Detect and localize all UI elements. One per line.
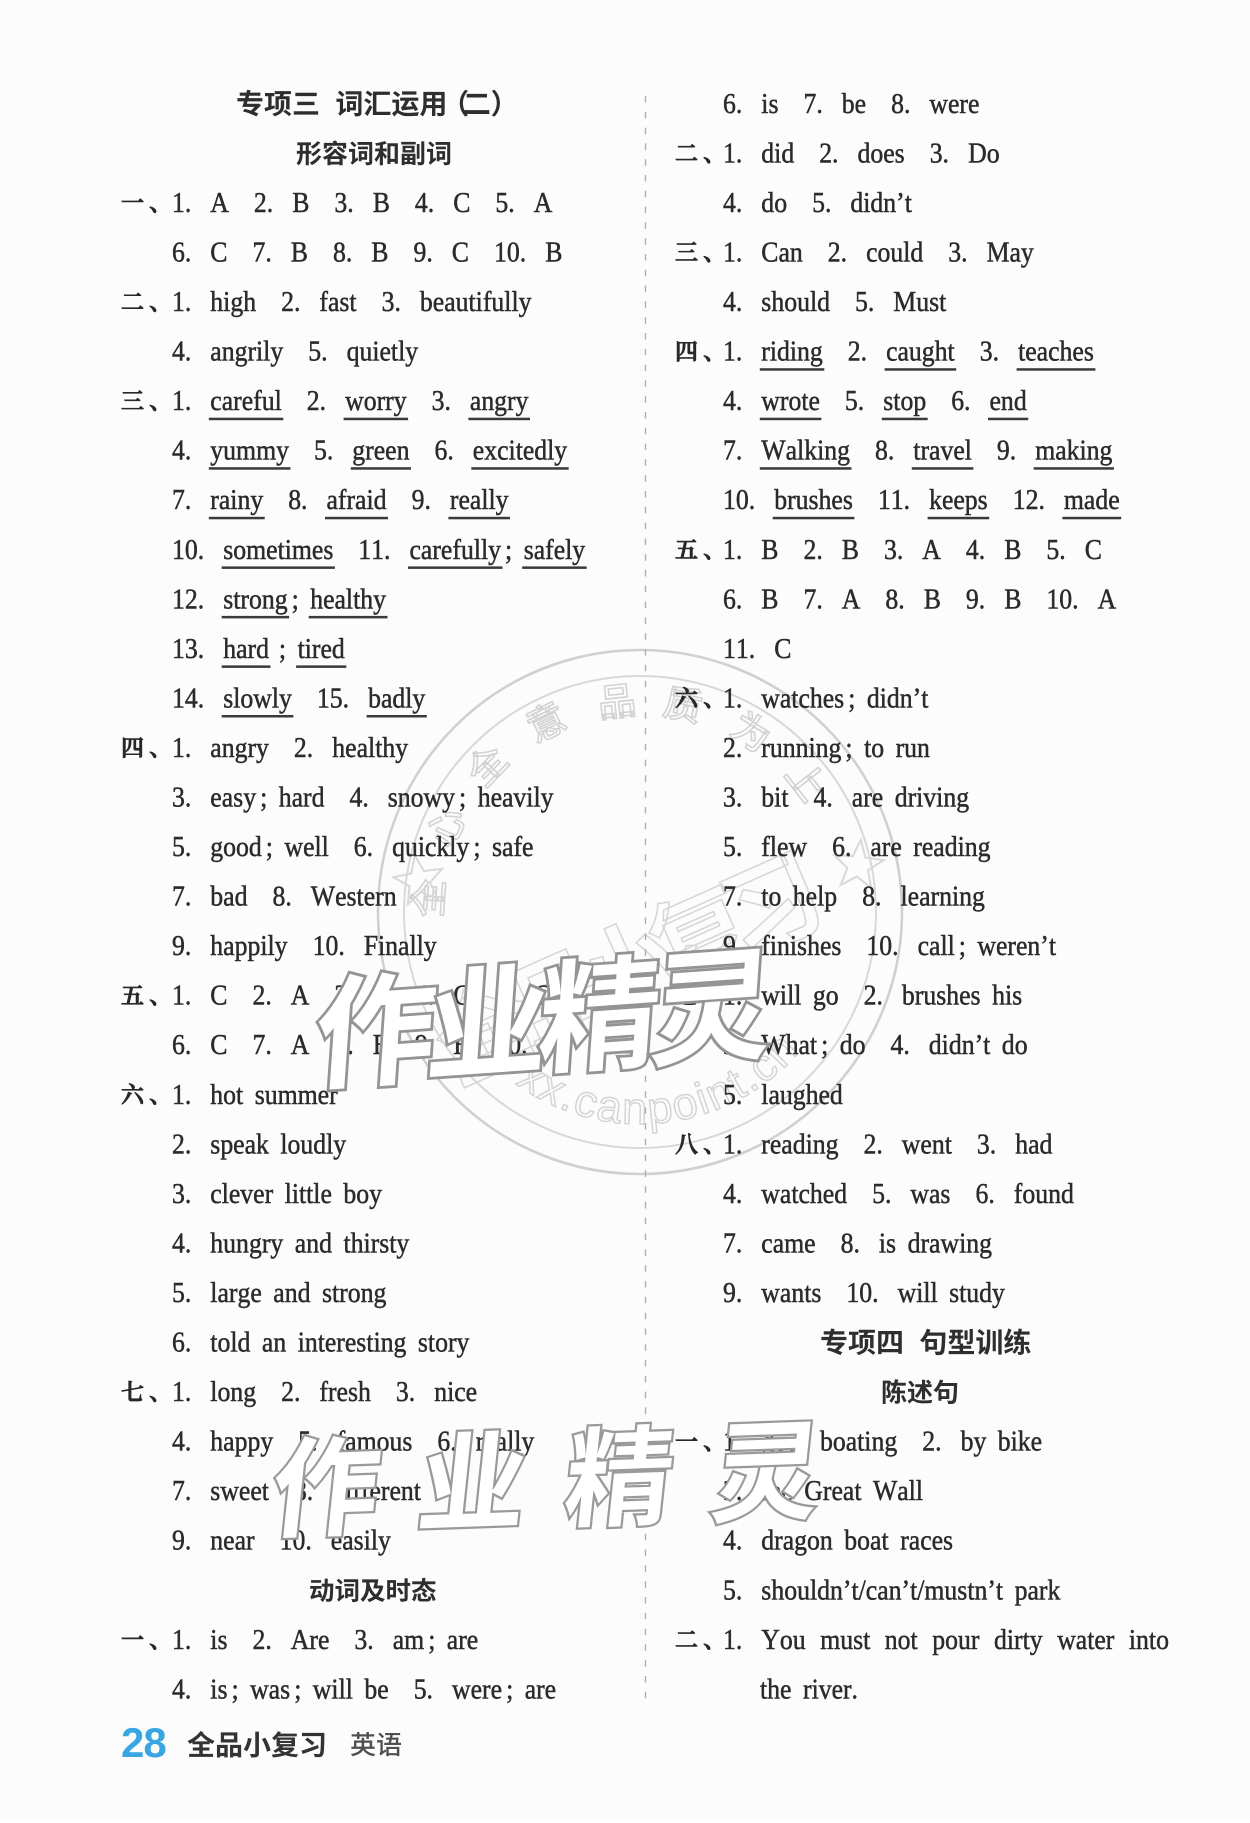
svg-text:1.willgo2.brusheshis: 1.willgo2.brusheshis [723,980,1022,1012]
svg-text:5.laughed: 5.laughed [723,1079,843,1111]
svg-text:6.is7.be8.were: 6.is7.be8.were [723,88,979,120]
svg-text:1.is2.Are3.am;are: 1.is2.Are3.am;are [172,1624,478,1656]
svg-text:9.finishes10.call;weren’t: 9.finishes10.call;weren’t [723,930,1056,962]
svg-text:7.Walking8.travel9.making: 7.Walking8.travel9.making [723,435,1112,467]
svg-text:10.sometimes11.carefully;safel: 10.sometimes11.carefully;safely [172,534,586,566]
svg-text:9.wants10.willstudy: 9.wants10.willstudy [723,1277,1005,1309]
svg-text:1.careful2.worry3.angry: 1.careful2.worry3.angry [172,385,529,417]
svg-text:6.toldaninterestingstory: 6.toldaninterestingstory [172,1327,470,1359]
svg-text:7.came8.isdrawing: 7.came8.isdrawing [723,1227,992,1259]
svg-text:4.yummy5.green6.excitedly: 4.yummy5.green6.excitedly [172,435,568,467]
svg-text:1.Can2.could3.May: 1.Can2.could3.May [723,236,1034,268]
svg-text:7.rainy8.afraid9.really: 7.rainy8.afraid9.really [172,484,509,516]
svg-text:3.easy;hard4.snowy;heavily: 3.easy;hard4.snowy;heavily [172,782,554,814]
svg-text:13.hard;tired: 13.hard;tired [172,633,345,665]
svg-text:12.strong;healthy: 12.strong;healthy [172,583,386,615]
svg-text:28: 28 [121,1719,166,1766]
svg-text:1.riding2.caught3.teaches: 1.riding2.caught3.teaches [723,336,1094,368]
svg-text:theriver.: theriver. [760,1673,858,1705]
svg-text:1.Youmustnotpourdirtywaterinto: 1.Youmustnotpourdirtywaterinto [723,1624,1169,1656]
svg-text:1.high2.fast3.beautifully: 1.high2.fast3.beautifully [172,286,532,318]
